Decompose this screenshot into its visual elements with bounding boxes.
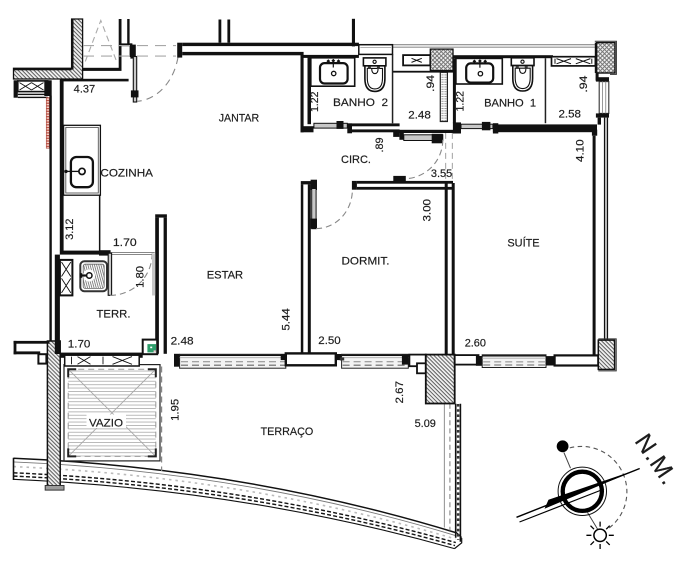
svg-text:1.70: 1.70 [68,339,91,351]
svg-text:ESTAR: ESTAR [207,269,243,281]
svg-text:1.22: 1.22 [309,92,321,113]
svg-text:JANTAR: JANTAR [219,112,260,124]
svg-text:DORMIT.: DORMIT. [342,256,390,268]
svg-text:.94: .94 [425,75,437,92]
svg-text:COZINHA: COZINHA [100,168,153,180]
svg-text:3.55: 3.55 [431,168,452,180]
svg-text:1.80: 1.80 [134,266,146,288]
svg-text:1.70: 1.70 [113,237,137,249]
svg-text:SUÍTE: SUÍTE [507,237,540,250]
svg-text:VAZIO: VAZIO [89,418,123,430]
svg-text:2.48: 2.48 [171,336,194,348]
svg-text:BANHO 2: BANHO 2 [333,97,388,109]
svg-text:2.50: 2.50 [318,335,340,347]
svg-text:2.60: 2.60 [465,337,486,349]
svg-text:4.10: 4.10 [574,139,586,162]
svg-text:4.37: 4.37 [74,83,96,95]
svg-text:BANHO 1: BANHO 1 [484,98,536,110]
svg-text:2.48: 2.48 [408,110,431,122]
svg-text:5.44: 5.44 [280,308,292,331]
svg-text:2.67: 2.67 [394,381,406,404]
svg-text:5.09: 5.09 [415,418,436,430]
svg-text:CIRC.: CIRC. [341,154,371,166]
svg-text:3.00: 3.00 [421,199,433,222]
svg-text:1.95: 1.95 [170,399,182,421]
svg-text:1.22: 1.22 [454,91,466,112]
svg-text:.94: .94 [578,76,590,93]
svg-text:2.58: 2.58 [559,109,582,121]
svg-text:TERR.: TERR. [97,309,131,321]
svg-text:3.12: 3.12 [64,219,76,240]
svg-text:.89: .89 [374,138,386,153]
svg-text:TERRAÇO: TERRAÇO [261,426,314,438]
